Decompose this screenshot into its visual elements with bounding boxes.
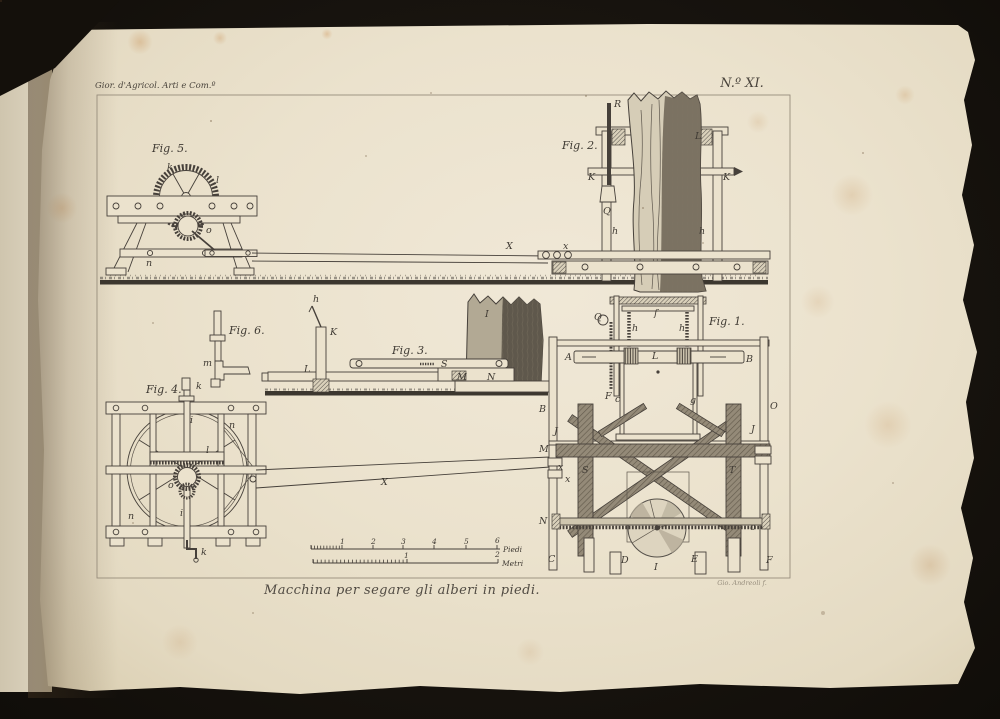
scale-metri-tick-2: 2 — [494, 550, 500, 559]
photographed-book-spread: Gior. d'Agricol. Arti e Com.º N.º XI. — [0, 0, 1000, 719]
fig4-wheel-frame-plan: Fig. 4. k k i i l o n n — [106, 378, 266, 562]
fig2-label-k-right: K — [722, 172, 731, 183]
scale-metri-tick-1: 1 — [404, 551, 409, 560]
fig1-label-x2: x — [565, 474, 571, 485]
fig1-label-i-bottom: I — [653, 562, 658, 573]
fig1-label-h-right: h — [679, 323, 685, 334]
fig1-label-h-left: h — [632, 323, 638, 334]
fig1-label-e-bottom: E — [690, 554, 698, 565]
journal-title: Gior. d'Agricol. Arti e Com.º — [95, 81, 215, 91]
fig1-label-c: c — [615, 394, 621, 405]
fig2-label-k-left: K — [587, 172, 596, 183]
scale-piedi-tick-3: 3 — [401, 537, 406, 546]
fig6-label-m: m — [203, 358, 212, 369]
fig2-label-h-right: h — [699, 226, 705, 237]
fig1-label-m: M — [538, 444, 549, 455]
fig6-pawl-detail: Fig. 6. m — [203, 311, 265, 387]
plate-number: N.º XI. — [719, 76, 763, 91]
plate-caption: Macchina per segare gli alberi in piedi. — [263, 583, 540, 598]
scale-piedi-tick-6: 6 — [495, 536, 500, 545]
fig3-label-m: M — [456, 372, 467, 383]
fig1-label-n: N — [538, 516, 548, 527]
fig1-label-j-right: J — [749, 424, 756, 435]
fig3-label-n: N — [486, 372, 496, 383]
fig5-label-l: l — [216, 175, 219, 186]
fig4-label-i-top: i — [190, 415, 193, 426]
fig5-label-n: n — [146, 258, 152, 269]
fig3-label-i: I — [484, 309, 489, 320]
fig3-label-k: K — [329, 327, 338, 338]
fig2-label-x: x — [563, 241, 569, 252]
fig4-label-i-bottom: i — [180, 508, 183, 519]
fig3-title: Fig. 3. — [391, 344, 428, 357]
fig1-label-j-left: J — [552, 426, 559, 437]
fig1-label-x1: x — [558, 462, 564, 473]
fig2-label-r: R — [613, 99, 621, 110]
fig3-label-s: S — [441, 359, 448, 370]
fig4-label-n-right: n — [229, 420, 235, 431]
fig1-label-t: T — [729, 465, 736, 476]
fig5-label-k: k — [167, 162, 173, 173]
fig2-label-h-left: h — [612, 226, 618, 237]
fig5-title: Fig. 5. — [151, 142, 188, 155]
lower-drive-rod: X — [250, 457, 560, 488]
fig1-label-q: Q — [594, 312, 602, 323]
scale-piedi-tick-1: 1 — [340, 537, 345, 546]
fig1-label-b: B — [745, 354, 753, 365]
fig5-label-o: o — [206, 225, 212, 236]
fig1-label-o2: o — [750, 522, 756, 533]
fig2-title: Fig. 2. — [561, 139, 598, 152]
fig1-label-f-bottom: F — [765, 555, 773, 566]
fig2-label-l: L — [694, 131, 701, 142]
fig4-label-o: o — [168, 480, 174, 491]
fig1-label-a: A — [564, 352, 572, 363]
fig4-label-n-left: n — [128, 511, 134, 522]
fig1-label-l: L — [651, 351, 658, 362]
fig4-label-l: l — [206, 445, 209, 456]
fig6-title: Fig. 6. — [228, 324, 265, 337]
scale-piedi-tick-2: 2 — [370, 537, 376, 546]
fig2-tree-frame-front: Fig. 2. R L K K Q h h x — [538, 91, 770, 292]
engraved-plate: Gior. d'Agricol. Arti e Com.º N.º XI. — [0, 0, 1000, 719]
fig2-label-q: Q — [603, 206, 611, 217]
fig1-title: Fig. 1. — [708, 315, 745, 328]
paper-specks — [0, 0, 2, 2]
engraver-signature: Gio. Andreoli f. — [717, 579, 767, 587]
fig4-label-k-bottom: k — [201, 547, 207, 558]
fig1-label-o-right: O — [770, 401, 778, 412]
scale-metri-label: Metri — [501, 559, 524, 568]
scale-piedi-tick-4: 4 — [431, 537, 437, 546]
fig3-saw-carriage-side: Fig. 3. h K L S M N I — [262, 294, 551, 396]
fig3-label-h: h — [313, 294, 319, 305]
upper-drive-beam: X — [252, 241, 548, 263]
fig3-label-l: L — [303, 364, 310, 375]
fig1-label-g: g — [690, 395, 696, 406]
upper-beam-label-x: X — [505, 241, 514, 252]
fig4-label-k-top: k — [196, 381, 202, 392]
fig1-label-f2: F — [604, 391, 612, 402]
fig1-label-b-left: B — [538, 404, 546, 415]
fig1-main-machine-front: Fig. 1. Q f h h A L B c g F B O J J M S … — [538, 296, 778, 574]
fig1-label-s: S — [582, 465, 589, 476]
scale-piedi-label: Piedi — [502, 545, 523, 554]
scale-piedi-tick-5: 5 — [464, 537, 469, 546]
lower-rod-label-x: X — [380, 477, 389, 488]
fig1-label-d-bottom: D — [620, 555, 629, 566]
scale-bar: 1 2 3 4 5 6 Piedi 1 2 Metri — [311, 536, 524, 568]
fig4-title: Fig. 4. — [145, 383, 182, 396]
fig5-gear-trestle: Fig. 5. k l o n — [106, 142, 257, 275]
fig1-label-c-bottom: C — [548, 554, 556, 565]
